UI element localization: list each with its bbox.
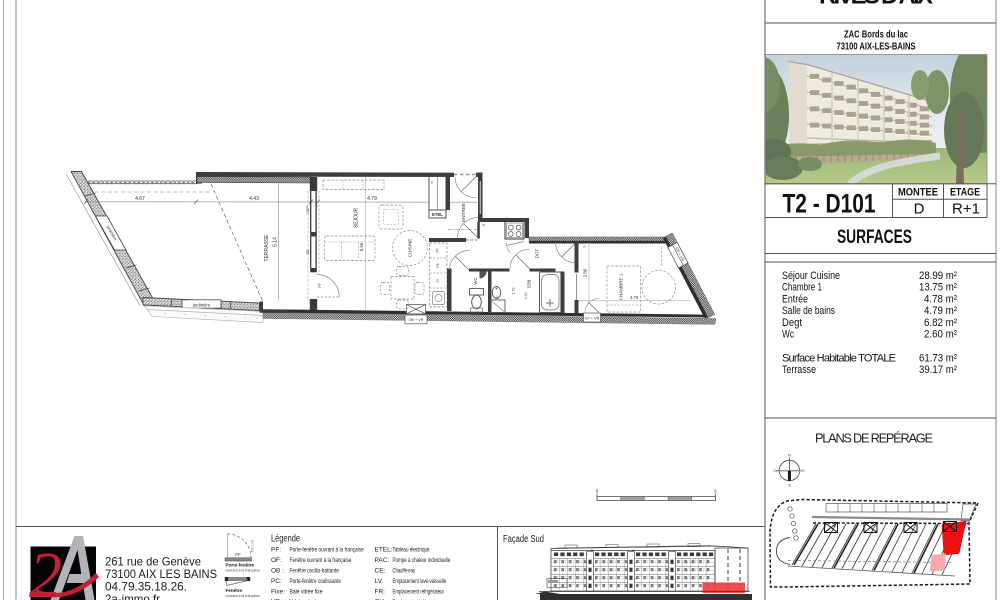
svg-text:N: N [788, 453, 791, 458]
svg-text:Porte-fenêtre ouvrant à la fra: Porte-fenêtre ouvrant à la française [290, 547, 364, 554]
svg-text:Salle de bains: Salle de bains [782, 305, 835, 317]
svg-text:OB :: OB : [271, 568, 284, 575]
svg-text:Emplacement réfrigérateur: Emplacement réfrigérateur [393, 588, 445, 595]
svg-text:OB: OB [306, 249, 310, 255]
svg-text:ETEL:: ETEL: [375, 547, 393, 554]
svg-text:28.99 m²: 28.99 m² [919, 270, 957, 282]
svg-text:73100 AIX-LES-BAINS: 73100 AIX-LES-BAINS [837, 42, 916, 53]
svg-text:Légende: Légende [271, 533, 300, 545]
svg-text:Séjour Cuisine: Séjour Cuisine [782, 270, 840, 282]
svg-text:Pompe à chaleur individuelle: Pompe à chaleur individuelle [393, 557, 451, 564]
svg-text:22: 22 [305, 205, 309, 209]
svg-text:LV.: LV. [375, 578, 384, 585]
svg-text:LL: LL [496, 295, 500, 299]
svg-text:TERRASSE: TERRASSE [264, 234, 270, 262]
svg-text:10: 10 [583, 245, 587, 249]
svg-text:jardinière: jardinière [192, 302, 211, 307]
svg-text:ETEL: ETEL [432, 212, 443, 217]
svg-text:Surface Habitable TOTALE: Surface Habitable TOTALE [782, 353, 896, 365]
svg-text:Fixe:: Fixe: [271, 588, 285, 595]
svg-text:4.79: 4.79 [367, 196, 377, 202]
svg-text:PAC:: PAC: [375, 557, 390, 564]
svg-text:Terrasse: Terrasse [782, 364, 816, 376]
svg-text:4.67: 4.67 [135, 196, 145, 202]
svg-text:ETAGE: ETAGE [950, 186, 980, 198]
svg-text:Fenêtre: Fenêtre [226, 588, 243, 593]
svg-text:18: 18 [315, 204, 319, 208]
svg-text:Fenêtre ouvrant à la française: Fenêtre ouvrant à la française [290, 557, 352, 564]
svg-text:D: D [914, 201, 925, 218]
svg-text:R+1: R+1 [952, 201, 980, 218]
svg-text:Fenêtre oscillo-battante: Fenêtre oscillo-battante [290, 568, 340, 575]
svg-text:FR: FR [436, 248, 440, 253]
svg-text:ouvrant à la française: ouvrant à la française [226, 594, 260, 598]
svg-text:2.32: 2.32 [524, 293, 528, 300]
svg-text:Chambre 1: Chambre 1 [782, 282, 822, 294]
svg-text:4.78 m²: 4.78 m² [924, 293, 957, 305]
svg-text:ENTREE: ENTREE [461, 203, 466, 222]
svg-text:Porte-fenêtre: Porte-fenêtre [226, 563, 255, 568]
svg-text:CF + VR: CF + VR [585, 317, 600, 321]
svg-text:4.75: 4.75 [630, 295, 639, 300]
svg-text:DGT: DGT [535, 248, 540, 258]
svg-text:13.75 m²: 13.75 m² [919, 282, 957, 294]
svg-text:CE:: CE: [375, 568, 386, 575]
svg-text:CE: CE [436, 262, 440, 267]
svg-text:PLANS DE REPÉRAGE: PLANS DE REPÉRAGE [815, 431, 933, 446]
svg-text:PF: PF [318, 282, 322, 287]
svg-text:T2 - D101: T2 - D101 [783, 189, 876, 219]
svg-text:E: E [802, 468, 805, 473]
svg-text:WC: WC [473, 278, 478, 285]
svg-text:CHAMBRE 1: CHAMBRE 1 [619, 273, 624, 300]
svg-text:SO 1.05: SO 1.05 [251, 540, 255, 553]
svg-text:Emplacement lave-vaisselle: Emplacement lave-vaisselle [393, 578, 447, 585]
svg-text:CU: CU [505, 217, 509, 221]
svg-text:6.82 m²: 6.82 m² [924, 317, 957, 329]
svg-text:PF:: PF: [271, 547, 281, 554]
svg-text:SEJOUR: SEJOUR [354, 207, 360, 228]
svg-text:MONTEE: MONTEE [898, 187, 938, 199]
svg-text:OF:: OF: [271, 557, 282, 564]
svg-text:O: O [773, 468, 776, 473]
svg-text:5.14: 5.14 [272, 237, 278, 247]
svg-text:2.80: 2.80 [583, 268, 588, 277]
svg-text:Entrée: Entrée [782, 293, 808, 305]
svg-text:Tableau électrique: Tableau électrique [393, 547, 430, 554]
svg-text:Façade Sud: Façade Sud [503, 534, 544, 545]
svg-text:Wc: Wc [782, 329, 794, 341]
svg-text:OB + VR: OB + VR [408, 318, 423, 322]
svg-text:SI: SI [430, 181, 434, 184]
svg-text:61.73 m²: 61.73 m² [919, 353, 957, 365]
svg-text:4.43: 4.43 [249, 196, 259, 202]
svg-text:PF: PF [235, 552, 241, 557]
svg-text:1.73: 1.73 [512, 288, 516, 295]
svg-text:Porte-fenêtre coulissante: Porte-fenêtre coulissante [290, 578, 342, 585]
svg-text:SURFACES: SURFACES [837, 226, 912, 248]
svg-text:4.79 m²: 4.79 m² [924, 305, 957, 317]
svg-text:Baie vitrée fixe: Baie vitrée fixe [290, 588, 323, 595]
svg-text:39.17 m²: 39.17 m² [919, 364, 957, 376]
svg-text:ouvrant à la française: ouvrant à la française [226, 569, 260, 573]
svg-text:5.66: 5.66 [359, 242, 364, 251]
svg-text:SDB: SDB [527, 279, 532, 288]
svg-text:PC:: PC: [271, 578, 282, 585]
svg-text:ZAC Bords du lac: ZAC Bords du lac [844, 30, 908, 41]
svg-text:FR:: FR: [375, 588, 386, 595]
svg-text:CUISINE: CUISINE [408, 239, 413, 258]
svg-text:2.60 m²: 2.60 m² [924, 329, 957, 341]
svg-text:Degt: Degt [782, 317, 802, 329]
svg-text:RIVES D'AIX: RIVES D'AIX [819, 0, 933, 10]
svg-text:2a-immo.fr: 2a-immo.fr [105, 592, 160, 600]
svg-text:S: S [788, 483, 791, 488]
svg-text:2: 2 [29, 539, 62, 600]
svg-text:Chauffe-eau: Chauffe-eau [393, 568, 416, 575]
